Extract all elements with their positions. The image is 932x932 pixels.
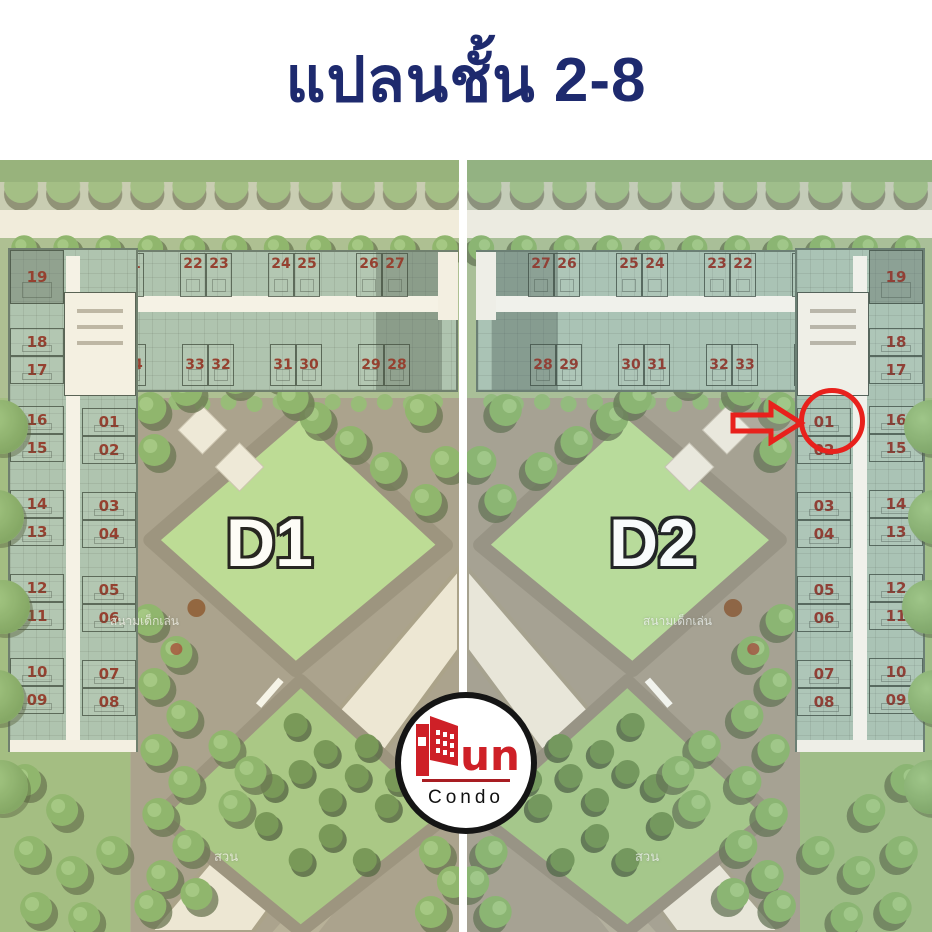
unit-cell: 17 [869,356,923,384]
unit-cell: 24 [268,253,294,297]
wing-endcap [10,740,136,752]
wing-endcap [476,252,496,320]
unit-cell: 08 [82,688,136,716]
unit-cell: 32 [208,344,234,386]
d2-east-inner-units: 0102030405060708 [797,408,851,716]
lobby-block [797,292,869,396]
garden-label: สวน [214,846,238,867]
d1-north-bottom-units: 34333231302928 [120,344,410,386]
unit-cell: 18 [869,328,923,356]
d1-west-wing: 1918171615141312111009 0102030405060708 [8,248,138,752]
d1-north-top-units: 2021222324252627 [92,253,408,297]
pun-logo-p-icon [412,714,460,776]
d2-north-bottom-units: 28293031323334 [530,344,820,386]
unit-cell: 07 [797,660,851,688]
unit-cell: 22 [730,253,756,297]
wing-endcap [797,740,923,752]
unit-cell: 26 [356,253,382,297]
d1-west-outer-units: 1918171615141312111009 [10,250,64,714]
unit-cell: 19 [869,250,923,304]
logo-underline [422,779,510,782]
unit-cell: 24 [642,253,668,297]
unit-cell: 27 [528,253,554,297]
building-label-d2: D2 [609,504,696,582]
unit-cell: 05 [82,576,136,604]
siteplan-d1: 2021222324252627 34333231302928 19181716… [0,160,459,932]
garden-label: สวน [635,846,659,867]
unit-cell: 28 [530,344,556,386]
unit-cell: 22 [180,253,206,297]
unit-cell: 17 [10,356,64,384]
unit-cell: 28 [384,344,410,386]
unit-cell: 23 [704,253,730,297]
siteplan-d2: 2726252423222120 28293031323334 19181716… [467,160,932,932]
unit-cell: 23 [206,253,232,297]
wing-endcap [438,252,458,320]
unit-cell: 30 [296,344,322,386]
lobby-block [64,292,136,396]
logo-subtitle: Condo [428,787,504,809]
unit-cell: 31 [270,344,296,386]
unit-cell: 18 [10,328,64,356]
d1-west-inner-units: 0102030405060708 [82,408,136,716]
unit-cell: 04 [82,520,136,548]
unit-cell: 03 [797,492,851,520]
unit-cell: 25 [616,253,642,297]
d2-east-wing: 1918171615141312111009 0102030405060708 [795,248,925,752]
logo-brand: un [412,714,520,776]
unit-cell: 25 [294,253,320,297]
page-title: แปลนชั้น 2-8 [286,31,647,129]
unit-cell: 03 [82,492,136,520]
pun-condo-logo: un Condo [395,692,537,834]
unit-cell: 33 [732,344,758,386]
unit-cell: 08 [797,688,851,716]
unit-cell: 29 [556,344,582,386]
logo-brand-suffix: un [460,736,520,776]
playground-label: สนามเด็กเล่น [643,612,712,631]
red-arrow-icon [730,400,808,446]
unit-cell: 27 [382,253,408,297]
unit-cell: 30 [618,344,644,386]
unit-cell: 01 [82,408,136,436]
playground-label: สนามเด็กเล่น [110,612,179,631]
unit-cell: 33 [182,344,208,386]
unit-cell: 19 [10,250,64,304]
unit-cell: 05 [797,576,851,604]
unit-cell: 06 [797,604,851,632]
unit-cell: 26 [554,253,580,297]
d2-east-outer-units: 1918171615141312111009 [869,250,923,714]
unit-cell: 04 [797,520,851,548]
unit-cell: 31 [644,344,670,386]
unit-cell: 02 [82,436,136,464]
unit-cell: 07 [82,660,136,688]
header: แปลนชั้น 2-8 [0,0,932,160]
unit-cell: 32 [706,344,732,386]
floorplan-flyer: แปลนชั้น 2-8 [0,0,932,932]
red-circle-highlight [799,388,865,454]
building-label-d1: D1 [226,504,313,582]
unit-cell: 29 [358,344,384,386]
